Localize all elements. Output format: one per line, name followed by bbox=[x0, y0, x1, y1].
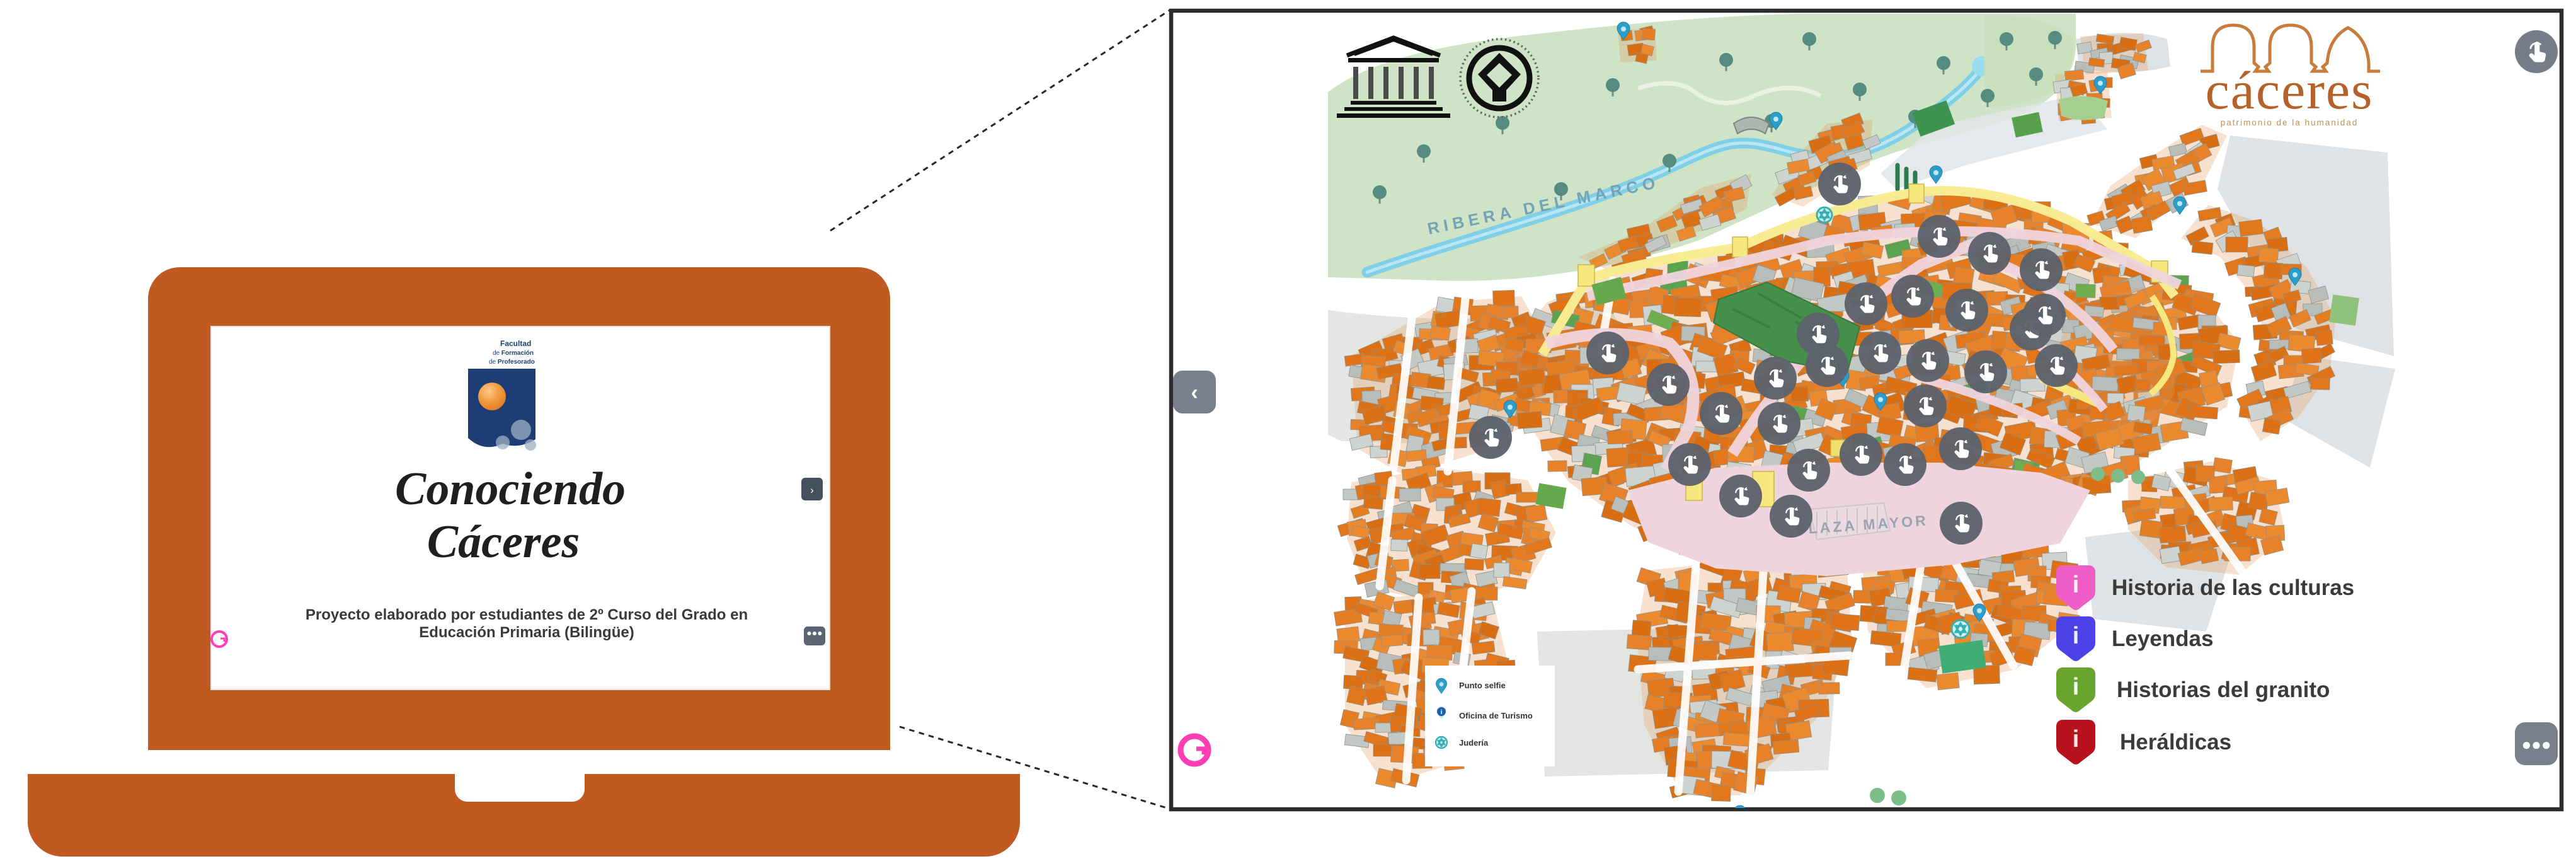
svg-text:Historia de las culturas: Historia de las culturas bbox=[2112, 575, 2354, 600]
svg-text:Facultad: Facultad bbox=[500, 339, 531, 348]
svg-text:Judería: Judería bbox=[1459, 738, 1489, 748]
svg-text:i: i bbox=[1441, 709, 1443, 716]
svg-text:Leyendas: Leyendas bbox=[2112, 626, 2213, 651]
svg-text:Historias del granito: Historias del granito bbox=[2117, 678, 2330, 702]
svg-text:cáceres: cáceres bbox=[2206, 60, 2374, 120]
svg-text:●●●: ●●● bbox=[2521, 735, 2551, 754]
svg-text:‹: ‹ bbox=[1191, 381, 1198, 405]
svg-text:Educación Primaria (Bilingüe): Educación Primaria (Bilingüe) bbox=[419, 624, 634, 641]
svg-text:Oficina de Turismo: Oficina de Turismo bbox=[1459, 711, 1533, 720]
svg-text:i: i bbox=[2073, 572, 2080, 598]
svg-text:de Formación: de Formación bbox=[493, 350, 534, 357]
svg-text:Conociendo: Conociendo bbox=[395, 463, 626, 515]
svg-text:i: i bbox=[2073, 726, 2080, 753]
svg-text:Heráldicas: Heráldicas bbox=[2120, 730, 2231, 754]
svg-text:patrimonio de la humanidad: patrimonio de la humanidad bbox=[2221, 118, 2359, 127]
svg-text:Cáceres: Cáceres bbox=[427, 516, 580, 568]
svg-text:Proyecto elaborado por estudia: Proyecto elaborado por estudiantes de 2º… bbox=[306, 606, 748, 623]
svg-text:de Profesorado: de Profesorado bbox=[489, 359, 535, 366]
svg-text:Punto selfie: Punto selfie bbox=[1459, 681, 1506, 690]
svg-text:i: i bbox=[2073, 674, 2080, 700]
svg-text:i: i bbox=[2073, 623, 2080, 649]
svg-text:●●●: ●●● bbox=[806, 628, 822, 638]
svg-text:›: › bbox=[810, 484, 814, 496]
